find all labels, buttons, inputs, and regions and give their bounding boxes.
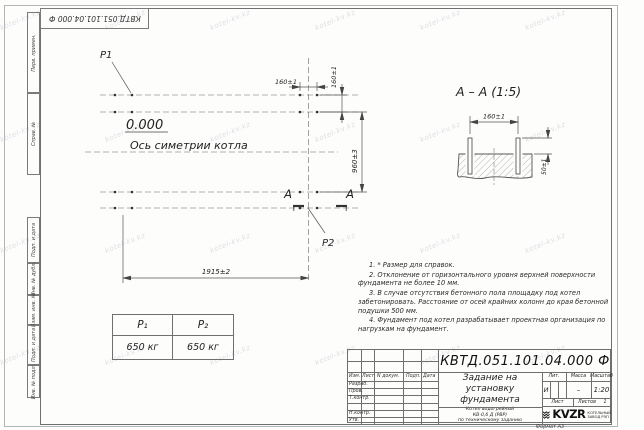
sheets-label: Листов bbox=[573, 398, 601, 406]
section-dim-spacing-label: 160±1 bbox=[483, 113, 505, 121]
scale-value: 1:20 bbox=[591, 381, 612, 398]
sheet-label: Лист bbox=[542, 398, 573, 406]
margin-label: Перв. примен. bbox=[31, 34, 37, 72]
dim-bolt-y-label: 160±1 bbox=[330, 66, 338, 88]
notes: 1. * Размер для справок. 2. Отклонение о… bbox=[358, 261, 616, 335]
margin-label: Инв. № дубл. bbox=[31, 262, 37, 296]
row-nkontr: Н.контр. bbox=[349, 411, 370, 416]
section-letter-right: А bbox=[345, 187, 354, 201]
load-table: P₁ P₂ 650 кг 650 кг bbox=[112, 314, 234, 360]
margin-box-podp-data-2: Подп. и дата bbox=[27, 325, 40, 365]
p2-leader-line bbox=[308, 208, 325, 233]
massa-value: – bbox=[566, 381, 591, 398]
col-podp: Подп. bbox=[406, 374, 421, 379]
col-data: Дата bbox=[423, 374, 435, 379]
section-letter-left: А bbox=[283, 187, 292, 201]
load-table-header-p2: P₂ bbox=[172, 314, 234, 336]
row-prov: Пров. bbox=[349, 389, 363, 394]
lit-label: Лит. bbox=[542, 372, 566, 381]
note-3: 3. В случае отсутствия бетонного пола пл… bbox=[358, 289, 616, 315]
row-utv: Утв. bbox=[349, 418, 359, 423]
margin-box-vzam-inv: Взам. инв. № bbox=[27, 295, 40, 325]
row-tkontr: Т.контр. bbox=[349, 396, 370, 401]
margin-label: Инв. № подл. bbox=[31, 364, 37, 399]
logo-text: KVZR bbox=[552, 409, 585, 421]
margin-label: Подп. и дата bbox=[31, 328, 37, 362]
doc-number-main: КВТД.051.101.04.000 Ф bbox=[438, 350, 612, 372]
dim-bolt-x-label: 160±1 bbox=[275, 78, 297, 86]
title-block: Изм. Лист N докум. Подп. Дата Разраб. Пр… bbox=[347, 349, 611, 423]
format-label: Формат А3 bbox=[510, 423, 590, 430]
drawing-title: Задание на установку фундамента bbox=[438, 372, 542, 407]
logo-caption: КОТЕЛЬНЫЙ ЗАВОД РЭП bbox=[587, 411, 611, 419]
dim-height bbox=[320, 112, 367, 192]
drawing-subtitle: Котел водогрейный КВ-0,6 Д (РВР) по техн… bbox=[438, 407, 542, 424]
lit-value: И bbox=[542, 381, 550, 398]
logo-cell: KVZR КОТЕЛЬНЫЙ ЗАВОД РЭП bbox=[542, 406, 612, 424]
margin-box-inv-dubl: Инв. № дубл. bbox=[27, 263, 40, 295]
load-table-value-p2: 650 кг bbox=[172, 335, 234, 360]
dim-height-label: 960±3 bbox=[351, 149, 359, 173]
note-1: 1. * Размер для справок. bbox=[358, 261, 616, 270]
row-razrab: Разраб. bbox=[349, 382, 368, 387]
section-title: А – А (1:5) bbox=[455, 84, 521, 99]
col-list: Лист bbox=[362, 374, 374, 379]
margin-label: Взам. инв. № bbox=[31, 293, 37, 327]
margin-label: Справ. № bbox=[31, 122, 37, 146]
centerlines bbox=[85, 58, 360, 283]
section-view: А – А (1:5) 160±1 50±1 bbox=[440, 82, 625, 194]
doc-number-stamp-top: КВТД.051.101.04.000 Ф bbox=[40, 8, 149, 29]
sheets-value: 1 bbox=[599, 398, 611, 406]
dim-width-label: 1915±2 bbox=[202, 268, 231, 276]
p2-label: P2 bbox=[322, 238, 334, 249]
dim-bolt-y bbox=[320, 84, 347, 123]
col-izm: Изм. bbox=[349, 374, 360, 379]
kvzr-logo-icon bbox=[543, 409, 550, 421]
p1-leader-line bbox=[112, 62, 131, 93]
note-4: 4. Фундамент под котел разрабатывает про… bbox=[358, 316, 616, 333]
load-table-header-p1: P₁ bbox=[112, 314, 173, 336]
margin-label: Подп. и дата bbox=[31, 223, 37, 257]
scale-label: Масштаб bbox=[591, 372, 612, 381]
load-table-value-p1: 650 кг bbox=[112, 335, 173, 360]
drawing-title-text: Задание на установку фундамента bbox=[454, 373, 526, 407]
doc-number-rotated: КВТД.051.101.04.000 Ф bbox=[49, 14, 141, 23]
section-dim-protrusion-label: 50±1 bbox=[541, 159, 548, 175]
massa-label: Масса bbox=[566, 372, 591, 381]
margin-box-podp-data-1: Подп. и дата bbox=[27, 217, 40, 263]
p1-label: P1 bbox=[100, 50, 112, 61]
note-2: 2. Отклонение от горизонтального уровня … bbox=[358, 271, 616, 288]
margin-box-inv-podl: Инв. № подл. bbox=[27, 365, 40, 398]
col-dokum: N докум. bbox=[377, 374, 399, 379]
drawing-sheet: kotel-kv.kzkotel-kv.kzkotel-kv.kzkotel-k… bbox=[0, 0, 644, 430]
margin-box-sprav-n: Справ. № bbox=[27, 93, 40, 175]
level-mark: 0.000 bbox=[126, 118, 163, 133]
axis-label: Ось симетрии котла bbox=[130, 139, 248, 152]
margin-box-perv-primen: Перв. примен. bbox=[27, 12, 40, 93]
